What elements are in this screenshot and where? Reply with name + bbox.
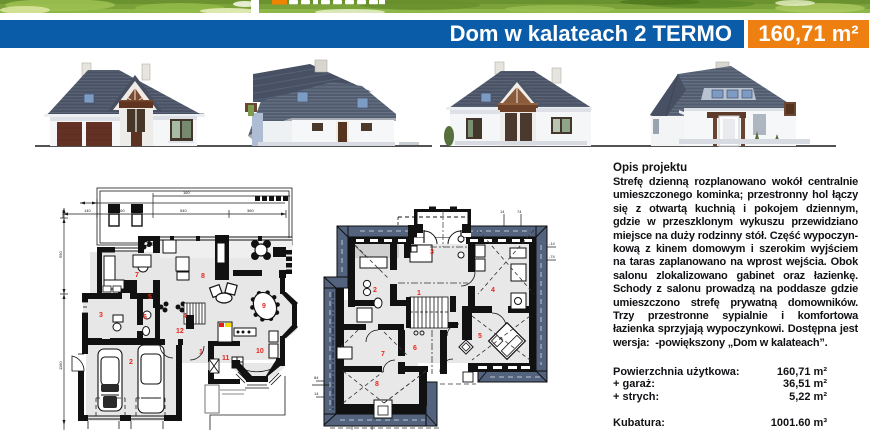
svg-text:2: 2	[373, 287, 377, 294]
svg-text:5: 5	[478, 333, 482, 340]
svg-text:540: 540	[180, 208, 187, 213]
svg-text:5: 5	[148, 294, 152, 301]
svg-text:-14: -14	[549, 241, 556, 246]
svg-text:14: 14	[500, 209, 505, 214]
svg-text:1: 1	[417, 290, 421, 297]
svg-text:140: 140	[84, 208, 91, 213]
svg-text:11: 11	[222, 355, 230, 362]
svg-text:1: 1	[199, 349, 203, 356]
svg-text:3: 3	[99, 312, 103, 319]
svg-text:590: 590	[58, 251, 63, 258]
svg-text:-74: -74	[549, 254, 556, 259]
svg-text:4: 4	[491, 287, 495, 294]
svg-text:360: 360	[247, 208, 254, 213]
svg-text:3: 3	[430, 249, 434, 256]
svg-text:10: 10	[256, 348, 264, 355]
svg-text:74: 74	[517, 209, 522, 214]
svg-text:6: 6	[143, 314, 147, 321]
svg-text:7: 7	[381, 351, 385, 358]
svg-text:9: 9	[262, 303, 266, 310]
svg-text:8: 8	[201, 273, 205, 280]
svg-text:7: 7	[135, 272, 139, 279]
svg-text:14: 14	[314, 391, 319, 396]
svg-text:1160: 1160	[58, 361, 63, 370]
svg-text:84: 84	[314, 375, 319, 380]
svg-text:8: 8	[375, 381, 379, 388]
svg-text:160: 160	[183, 190, 190, 195]
svg-text:2: 2	[129, 359, 133, 366]
svg-text:4: 4	[183, 313, 187, 320]
svg-text:12: 12	[176, 328, 184, 335]
svg-text:6: 6	[413, 345, 417, 352]
